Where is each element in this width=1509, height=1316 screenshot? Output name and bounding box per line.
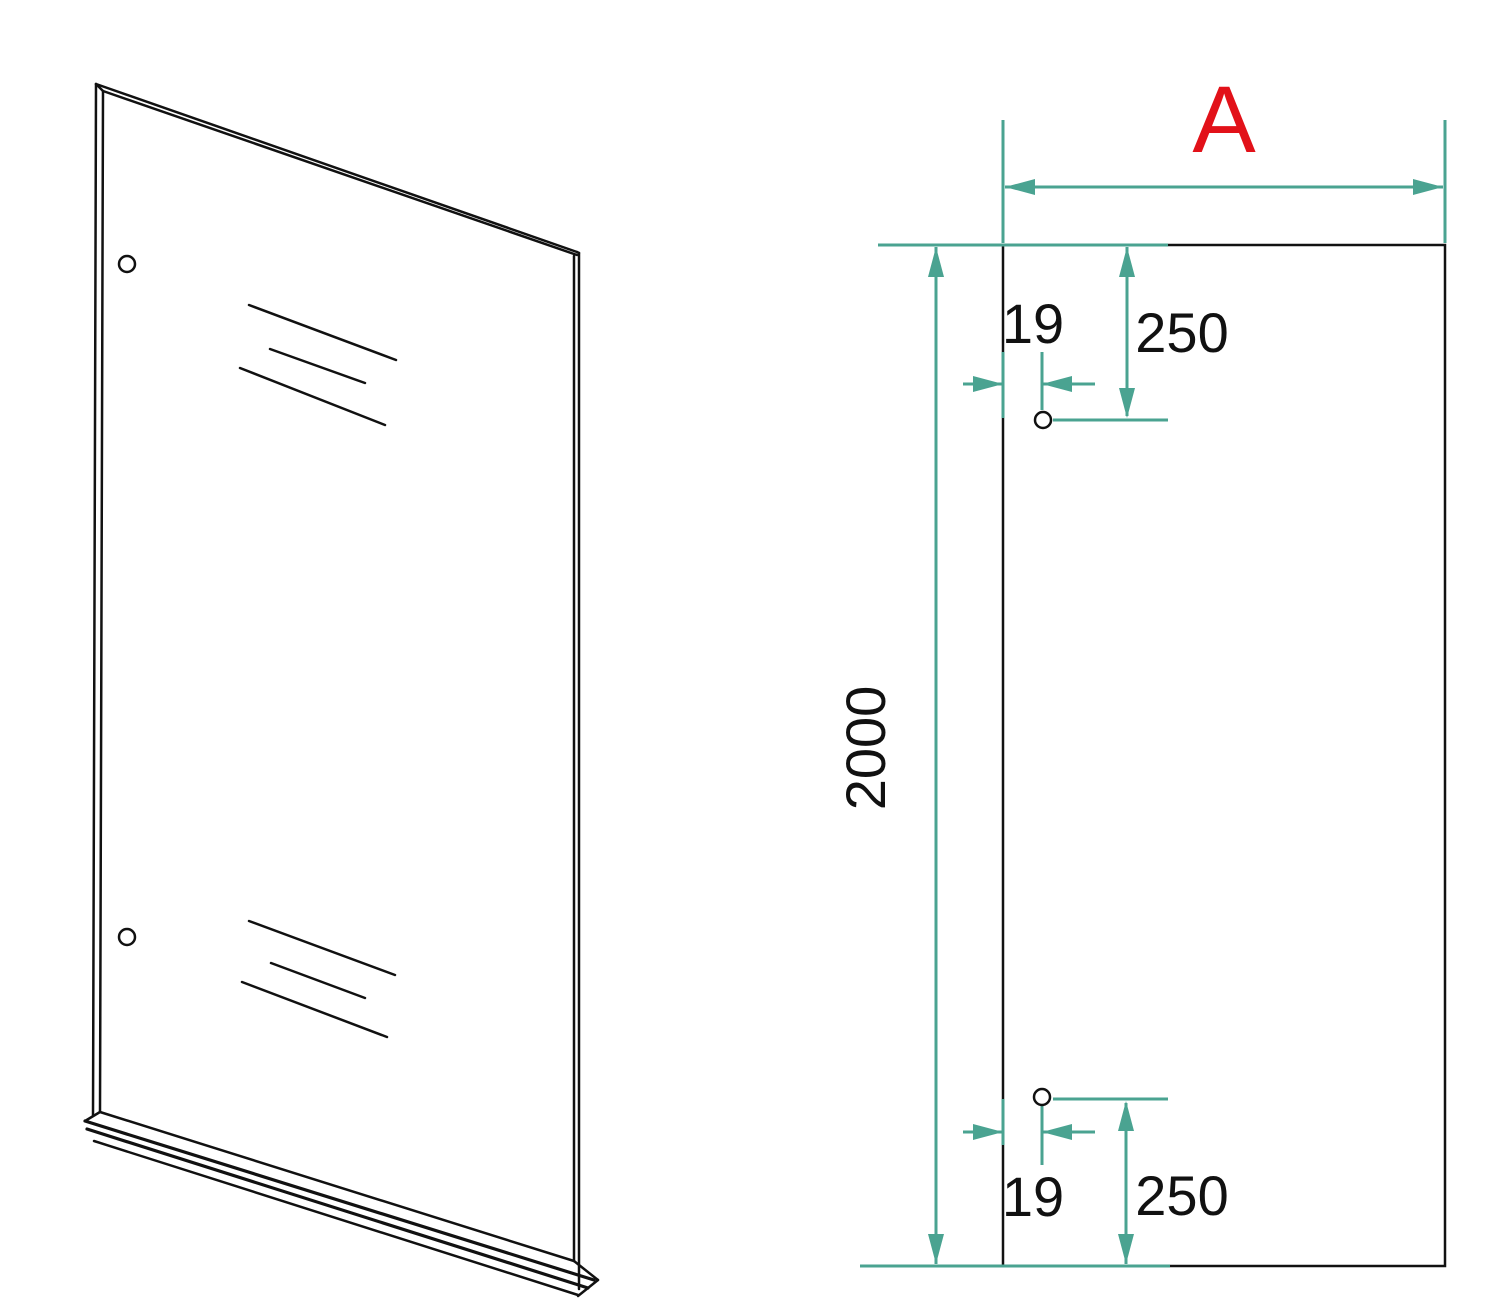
front-bottom-hole: [1034, 1089, 1050, 1105]
iso-view: [85, 84, 598, 1296]
panel-base-strip: [85, 1112, 598, 1296]
drawing-canvas: A 2000 250 19: [0, 0, 1509, 1316]
bottom-hole-edge-offset-label: 19: [1002, 1165, 1064, 1228]
technical-drawing: A 2000 250 19: [0, 0, 1509, 1316]
bottom-hole-offset-label: 250: [1135, 1164, 1228, 1227]
iso-bottom-hole: [119, 929, 135, 945]
arrow-right-icon: [973, 376, 1003, 392]
arrow-right-icon: [1413, 179, 1443, 195]
front-top-hole: [1035, 412, 1051, 428]
width-dim-label: A: [1192, 67, 1256, 173]
height-dim-label: 2000: [834, 686, 897, 811]
arrow-down-icon: [928, 1234, 944, 1264]
arrow-up-icon: [928, 247, 944, 277]
arrow-left-icon: [1042, 376, 1072, 392]
arrow-up-icon: [1119, 247, 1135, 277]
arrow-left-icon: [1005, 179, 1035, 195]
width-dimension: A: [1003, 67, 1445, 243]
panel-iso-edges: [93, 84, 579, 1289]
arrow-right-icon: [973, 1124, 1003, 1140]
arrow-down-icon: [1119, 388, 1135, 418]
arrow-down-icon: [1118, 1234, 1134, 1264]
arrow-up-icon: [1118, 1101, 1134, 1131]
reflection-lines-upper: [240, 305, 396, 425]
top-hole-edge-offset-label: 19: [1002, 292, 1064, 355]
front-view: A 2000 250 19: [834, 67, 1445, 1266]
top-hole-offset-label: 250: [1135, 301, 1228, 364]
arrow-left-icon: [1042, 1124, 1072, 1140]
panel-front-outline: [1003, 245, 1445, 1266]
iso-top-hole: [119, 256, 135, 272]
reflection-lines-lower: [242, 921, 395, 1037]
